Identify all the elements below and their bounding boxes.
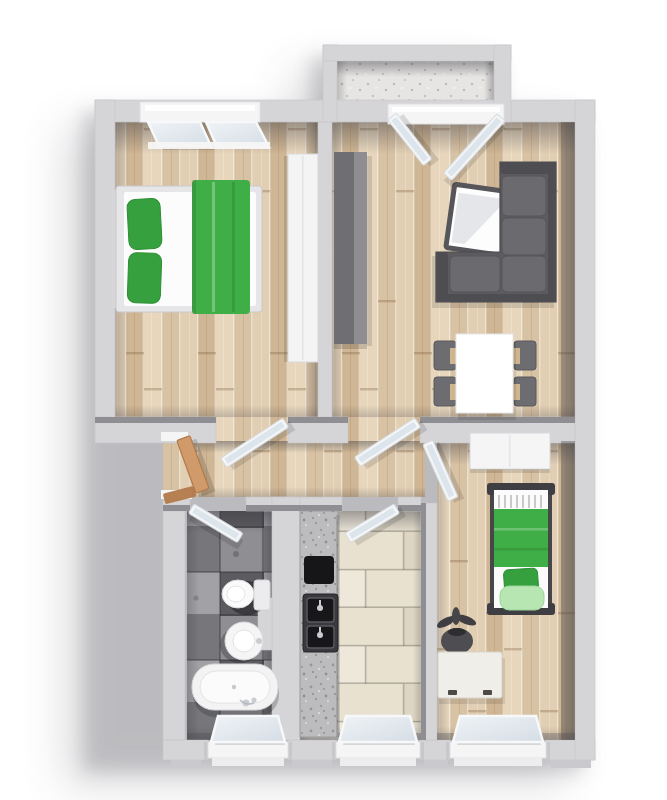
window-pane bbox=[211, 716, 285, 742]
plant-leaf bbox=[452, 607, 460, 625]
bathtub bbox=[192, 664, 279, 717]
window-pane bbox=[453, 716, 543, 742]
cooktop bbox=[304, 556, 334, 584]
wardrobe-bedroom-main bbox=[284, 154, 318, 362]
kitchen-double-sink bbox=[303, 594, 338, 652]
single-bed bbox=[487, 483, 555, 615]
dresser bbox=[438, 652, 505, 704]
window-bathroom bbox=[204, 716, 292, 766]
sofa-cushion bbox=[450, 256, 500, 292]
bed-duvet bbox=[494, 509, 548, 567]
sofa-armrest-top bbox=[500, 162, 556, 174]
sofa-backrest-bottom bbox=[436, 294, 556, 302]
window-sill bbox=[148, 142, 270, 149]
dresser-handle bbox=[483, 690, 492, 695]
wall-divider-bedroom-living bbox=[318, 122, 332, 417]
sofa-cushion bbox=[502, 218, 546, 255]
window-pane bbox=[339, 716, 417, 742]
bed-pillow-bottom bbox=[127, 252, 162, 303]
dresser-handle bbox=[448, 690, 457, 695]
wardrobe-bedroom-small bbox=[470, 433, 550, 473]
wall-balcony-top bbox=[323, 45, 511, 61]
sofa-cushion bbox=[502, 176, 546, 216]
toilet-tank bbox=[254, 580, 270, 610]
wall-bottom-seg3 bbox=[420, 740, 450, 760]
bed-blanket bbox=[192, 180, 250, 314]
wall-bottom-seg2 bbox=[288, 740, 336, 760]
double-bed bbox=[112, 180, 262, 314]
wall-bottom-seg1 bbox=[163, 740, 208, 760]
bed-pillow-top bbox=[127, 198, 163, 250]
sofa-cushion bbox=[502, 256, 546, 292]
media-cabinet bbox=[334, 152, 372, 349]
kitchen bbox=[300, 511, 340, 737]
dining-table bbox=[456, 334, 513, 413]
window-bedroom-small bbox=[446, 716, 550, 766]
sofa-backrest-right bbox=[548, 162, 556, 302]
floor-plan-svg bbox=[0, 0, 667, 800]
bed-pillow-light bbox=[500, 586, 544, 610]
window-kitchen bbox=[332, 716, 424, 766]
sink-faucet bbox=[256, 638, 262, 644]
wall-left-lower bbox=[163, 492, 185, 740]
tub-drain bbox=[232, 685, 236, 689]
wall-right bbox=[575, 100, 595, 760]
floor-plan-canvas bbox=[0, 0, 667, 800]
